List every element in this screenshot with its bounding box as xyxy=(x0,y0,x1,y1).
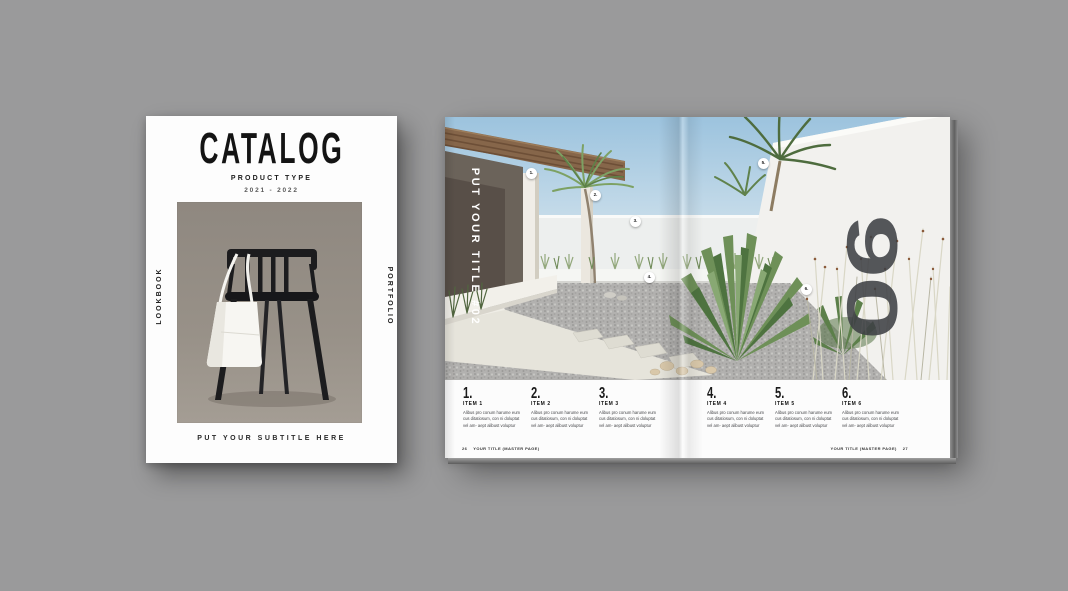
item-2-label: ITEM 2 xyxy=(531,401,589,407)
cover-title: CATALOG xyxy=(146,132,397,175)
item-4: 4. ITEM 4 Alibus pro conum harume eum cu… xyxy=(707,387,765,429)
item-4-number: 4. xyxy=(707,387,765,399)
footer-left: 26 YOUR TITLE (MASTER PAGE) xyxy=(462,446,539,451)
item-1-label: ITEM 1 xyxy=(463,401,521,407)
photo-marker-3: 3. xyxy=(630,216,641,227)
item-3-body: Alibus pro conum harume eum cus ditatios… xyxy=(599,410,657,430)
spread-vertical-title: PUT YOUR TITLE #02 xyxy=(468,162,482,332)
item-5-body: Alibus pro conum harume eum cus ditatios… xyxy=(775,410,833,430)
footer-right-label: YOUR TITLE (MASTER PAGE) xyxy=(831,446,897,451)
page-stack-edge-bottom xyxy=(448,458,956,464)
photo-marker-1-label: 1. xyxy=(530,171,534,176)
footer-right: YOUR TITLE (MASTER PAGE) 27 xyxy=(831,446,908,451)
item-3-label: ITEM 3 xyxy=(599,401,657,407)
chair-photo-illustration xyxy=(177,202,362,423)
item-1-number-text: 1. xyxy=(463,386,472,399)
photo-marker-2-label: 2. xyxy=(594,193,598,198)
catalog-front-cover: CATALOG PRODUCT TYPE 2021 - 2022 LOOKBOO… xyxy=(146,116,397,463)
section-number-text: 06 xyxy=(837,216,908,340)
photo-marker-3-label: 3. xyxy=(634,219,638,224)
item-3-number-text: 3. xyxy=(599,386,608,399)
item-2-number-text: 2. xyxy=(531,386,540,399)
footer-left-page-number: 26 xyxy=(462,446,467,451)
cover-years: 2021 - 2022 xyxy=(146,187,397,194)
item-6: 6. ITEM 6 Alibus pro conum harume eum cu… xyxy=(842,387,900,429)
item-5-number-text: 5. xyxy=(775,386,784,399)
cover-spine-right-label: PORTFOLIO xyxy=(382,236,396,356)
item-6-label: ITEM 6 xyxy=(842,401,900,407)
page-stack-edge-right xyxy=(950,120,958,458)
photo-marker-6-label: 6. xyxy=(805,287,809,292)
photo-marker-4-label: 4. xyxy=(648,275,652,280)
item-1: 1. ITEM 1 Alibus pro conum harume eum cu… xyxy=(463,387,521,429)
item-4-body: Alibus pro conum harume eum cus ditatios… xyxy=(707,410,765,430)
cover-spine-left-label: LOOKBOOK xyxy=(153,236,167,356)
item-4-label: ITEM 4 xyxy=(707,401,765,407)
photo-marker-6: 6. xyxy=(801,284,812,295)
cover-title-text: CATALOG xyxy=(199,131,344,168)
item-1-number: 1. xyxy=(463,387,521,399)
item-4-number-text: 4. xyxy=(707,386,716,399)
item-3: 3. ITEM 3 Alibus pro conum harume eum cu… xyxy=(599,387,657,429)
item-1-body: Alibus pro conum harume eum cus ditatios… xyxy=(463,410,521,430)
item-6-number: 6. xyxy=(842,387,900,399)
item-6-body: Alibus pro conum harume eum cus ditatios… xyxy=(842,410,900,430)
photo-marker-4: 4. xyxy=(644,272,655,283)
photo-marker-5: 5. xyxy=(758,158,769,169)
open-catalog-spread: 1. 2. 3. 4. 5. 6. PUT YOUR TITLE #02 06 … xyxy=(445,117,950,458)
cover-bottom-tagline: PUT YOUR SUBTITLE HERE xyxy=(146,435,397,442)
item-list: 1. ITEM 1 Alibus pro conum harume eum cu… xyxy=(445,387,950,445)
item-3-number: 3. xyxy=(599,387,657,399)
photo-marker-5-label: 5. xyxy=(762,161,766,166)
photo-marker-2: 2. xyxy=(590,190,601,201)
item-6-number-text: 6. xyxy=(842,386,851,399)
cover-subtitle: PRODUCT TYPE xyxy=(146,175,397,182)
item-2: 2. ITEM 2 Alibus pro conum harume eum cu… xyxy=(531,387,589,429)
photo-marker-1: 1. xyxy=(526,168,537,179)
item-5-label: ITEM 5 xyxy=(775,401,833,407)
item-5: 5. ITEM 5 Alibus pro conum harume eum cu… xyxy=(775,387,833,429)
footer-left-label: YOUR TITLE (MASTER PAGE) xyxy=(473,446,539,451)
item-2-number: 2. xyxy=(531,387,589,399)
mockup-stage: CATALOG PRODUCT TYPE 2021 - 2022 LOOKBOO… xyxy=(0,0,1068,591)
item-5-number: 5. xyxy=(775,387,833,399)
item-2-body: Alibus pro conum harume eum cus ditatios… xyxy=(531,410,589,430)
cover-photo-chair xyxy=(177,202,362,423)
footer-right-page-number: 27 xyxy=(903,446,908,451)
